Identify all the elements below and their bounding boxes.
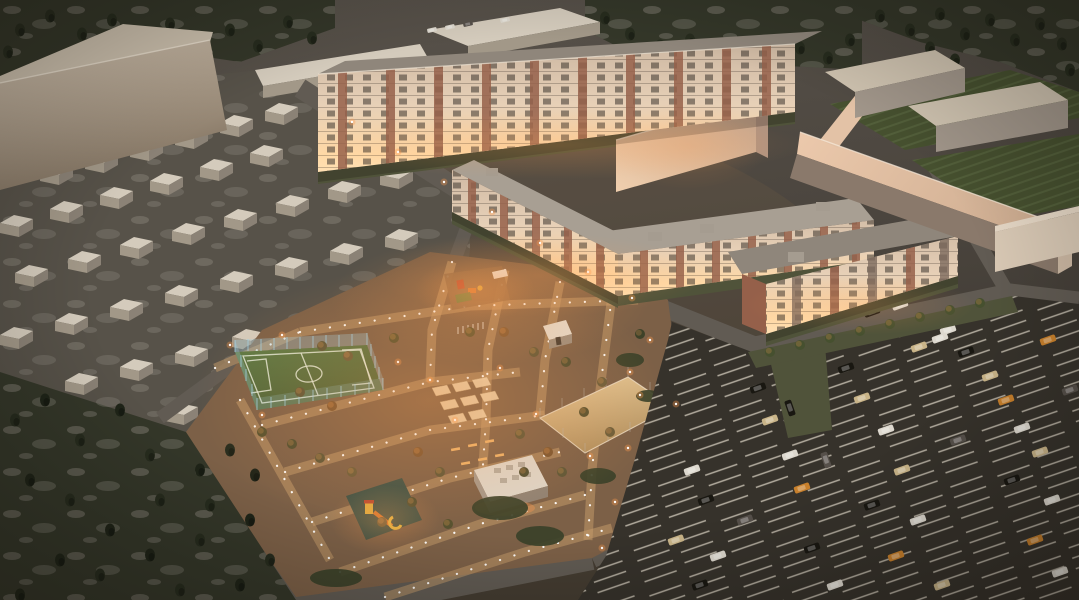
architectural-render (0, 0, 1079, 600)
render-canvas (0, 0, 1079, 600)
vignette (0, 0, 1079, 600)
